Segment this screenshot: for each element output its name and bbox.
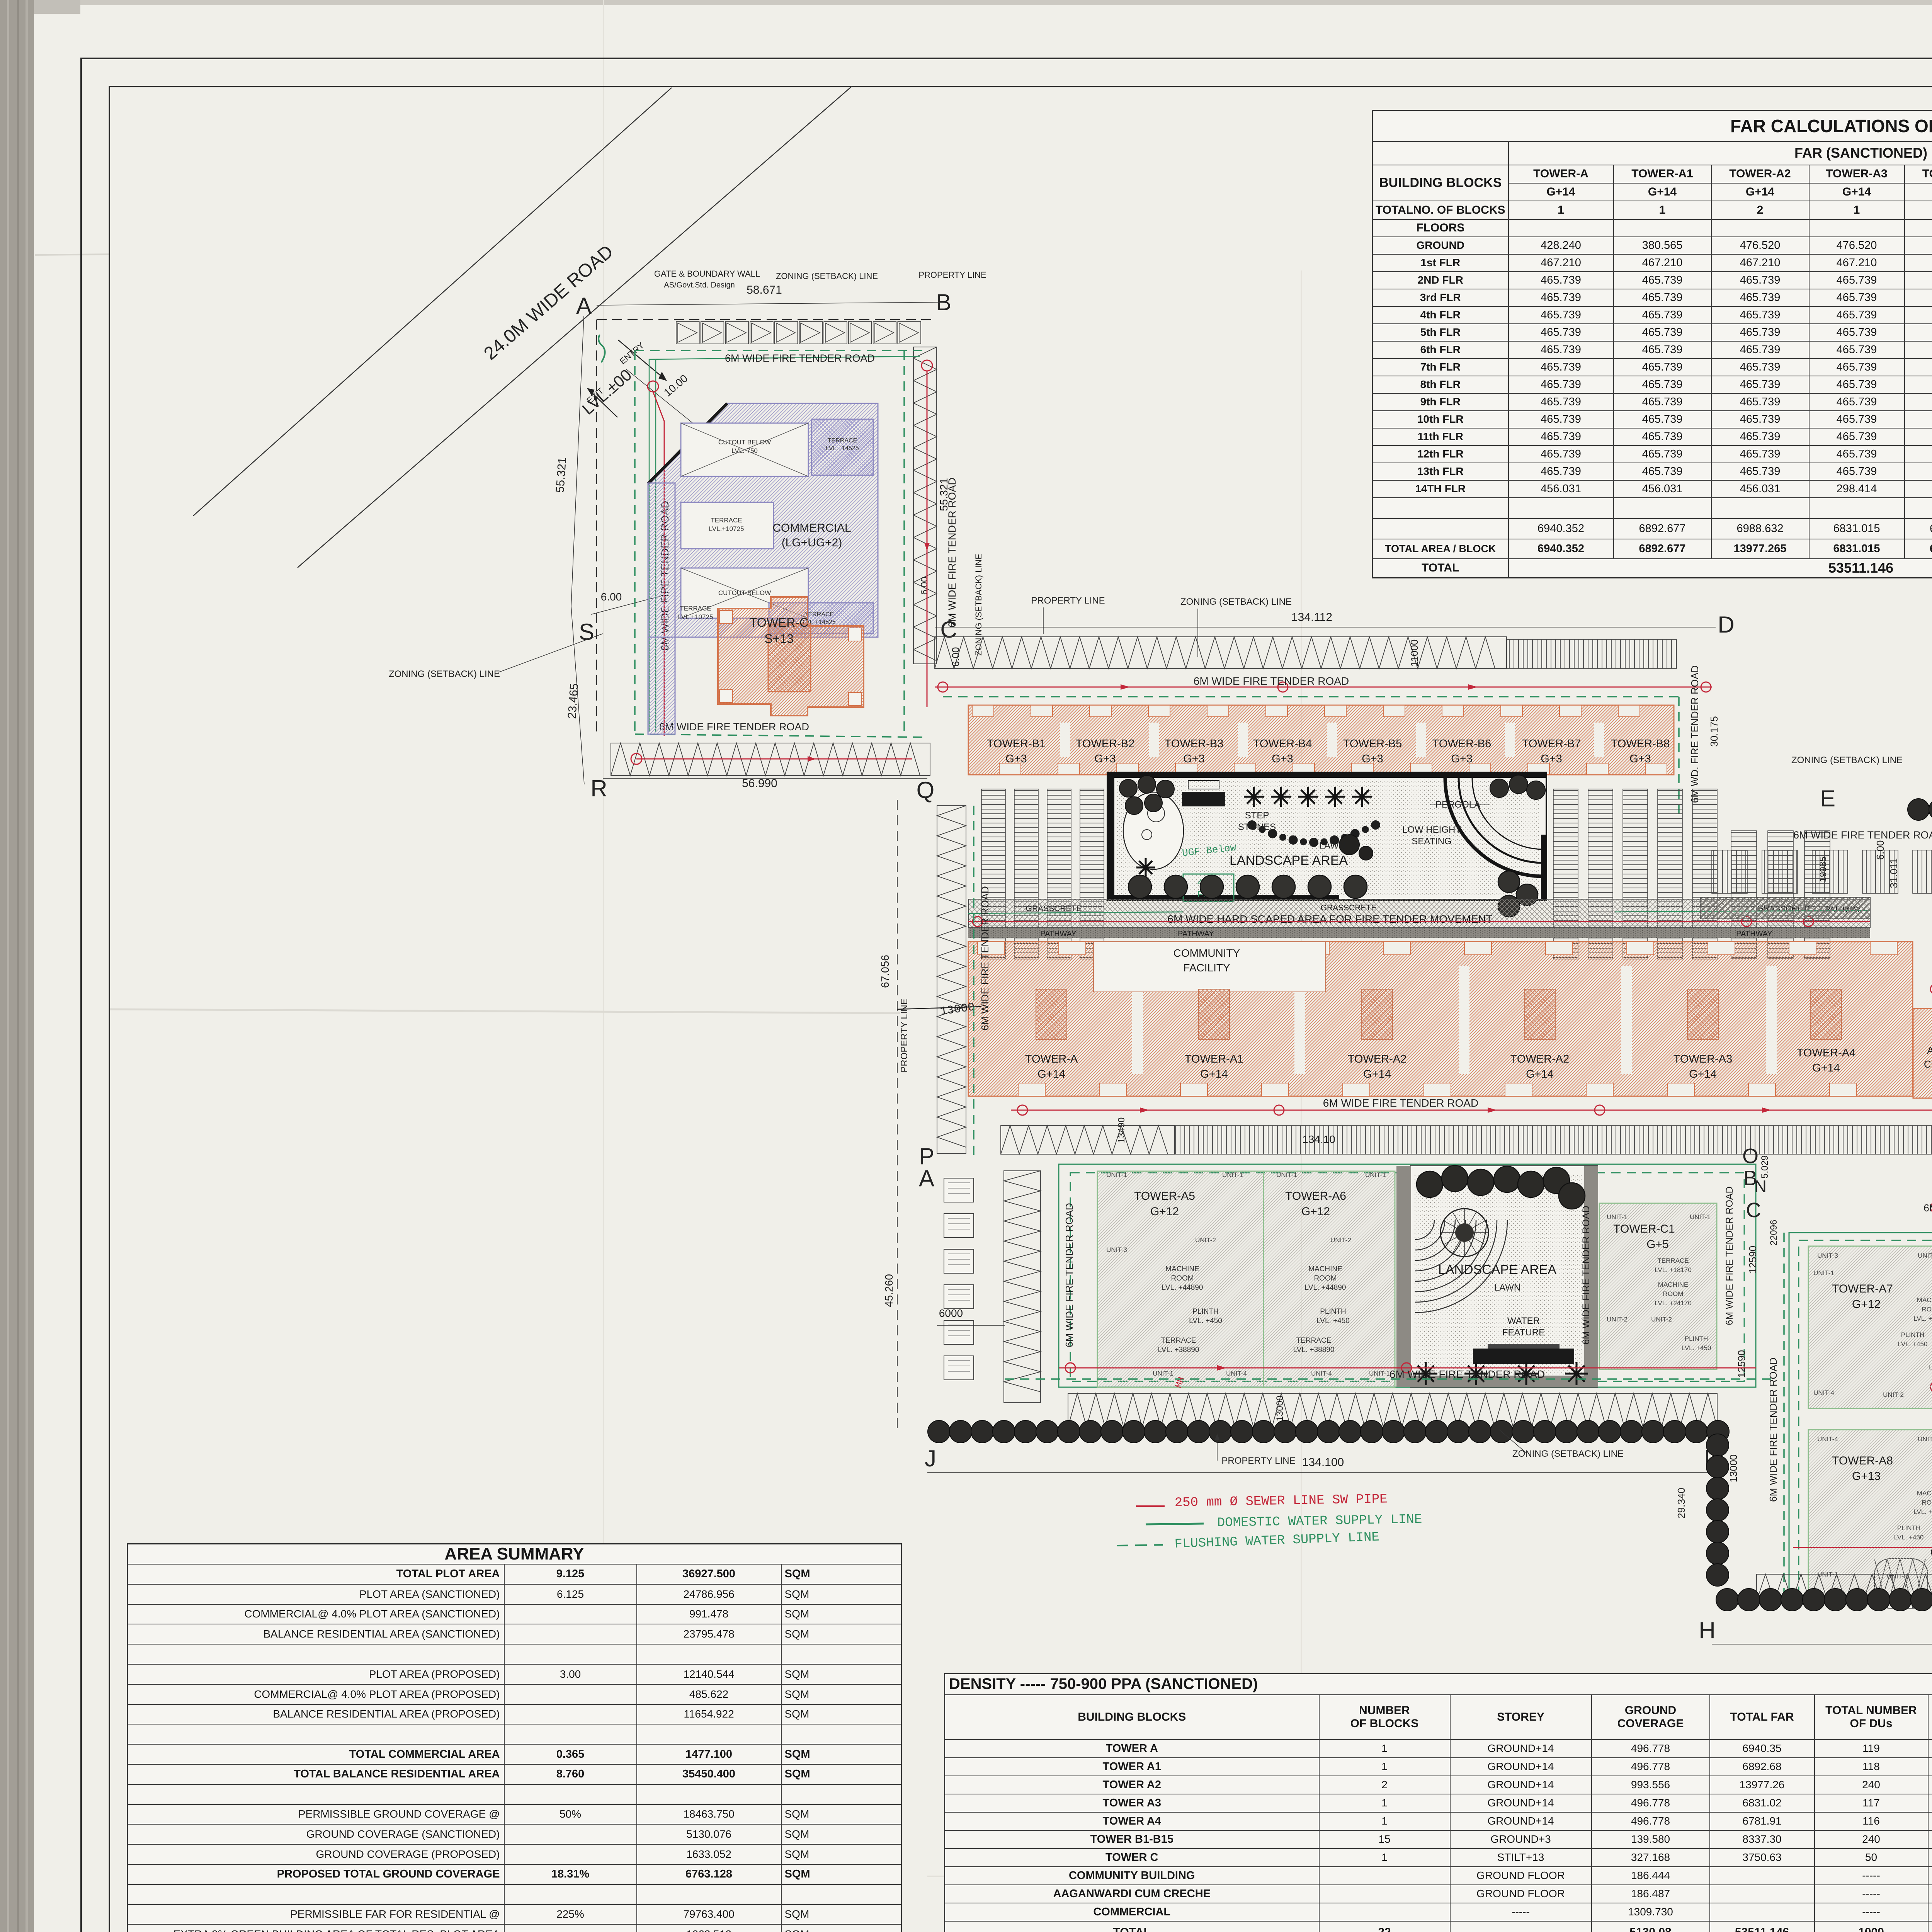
svg-text:A: A (919, 1165, 934, 1191)
svg-text:TOWER-A2: TOWER-A2 (1348, 1053, 1407, 1065)
svg-text:UNIT-4: UNIT-4 (1813, 1389, 1834, 1396)
svg-text:UNIT-1: UNIT-1 (1153, 1370, 1173, 1377)
svg-text:UNIT-4: UNIT-4 (1817, 1435, 1838, 1443)
svg-text:LVL. +450: LVL. +450 (1682, 1344, 1711, 1352)
svg-text:TOWER-A1: TOWER-A1 (1185, 1053, 1244, 1065)
svg-text:PROPERTY LINE: PROPERTY LINE (1031, 595, 1105, 606)
svg-text:S+13: S+13 (764, 632, 794, 646)
svg-text:58.671: 58.671 (747, 284, 782, 296)
svg-text:LVL. +38890: LVL. +38890 (1929, 1364, 1932, 1371)
svg-text:TOWER-C: TOWER-C (750, 616, 808, 629)
svg-text:WATER: WATER (1507, 1316, 1540, 1326)
svg-text:6M WD. FIRE TENDER ROAD: 6M WD. FIRE TENDER ROAD (1689, 665, 1701, 803)
svg-text:UNIT-3: UNIT-3 (1106, 1246, 1127, 1253)
svg-text:6M WIDE FIRE TENDER ROAD: 6M WIDE FIRE TENDER ROAD (725, 352, 875, 364)
svg-text:TOWER-A5: TOWER-A5 (1134, 1190, 1195, 1202)
svg-text:TOWER-A4: TOWER-A4 (1797, 1047, 1856, 1059)
svg-text:LAWN: LAWN (1319, 840, 1345, 851)
svg-text:TERRACE: TERRACE (1296, 1337, 1332, 1345)
svg-text:6M WIDE FIRE TENDER ROAD: 6M WIDE FIRE TENDER ROAD (1724, 1186, 1735, 1325)
svg-text:CUM CRECHE: CUM CRECHE (1924, 1058, 1932, 1070)
svg-text:6M WIDE FIRE TENDER ROAD: 6M WIDE FIRE TENDER ROAD (979, 886, 991, 1031)
svg-text:UNIT-1: UNIT-1 (1690, 1213, 1711, 1221)
svg-text:TOWER-B7: TOWER-B7 (1522, 738, 1581, 750)
svg-text:G+3: G+3 (1272, 753, 1293, 765)
svg-text:PATHWAY: PATHWAY (1178, 930, 1214, 938)
svg-text:PATHWAY: PATHWAY (1736, 930, 1772, 938)
svg-text:LOW HEIGHT: LOW HEIGHT (1402, 825, 1461, 835)
svg-text:TERRACE: TERRACE (828, 437, 857, 444)
svg-text:6.00: 6.00 (919, 577, 930, 595)
svg-text:LVL. +38890: LVL. +38890 (1293, 1346, 1335, 1354)
svg-text:TERRACE: TERRACE (711, 517, 742, 524)
svg-text:PLINTH: PLINTH (1192, 1308, 1219, 1316)
svg-text:ZONING (SETBACK) LINE: ZONING (SETBACK) LINE (776, 271, 878, 281)
svg-text:LVL. +450: LVL. +450 (1189, 1317, 1222, 1325)
svg-text:12590: 12590 (1736, 1350, 1747, 1378)
svg-text:STONES: STONES (1238, 822, 1276, 832)
svg-text:ZONING (SETBACK) LINE: ZONING (SETBACK) LINE (1791, 755, 1903, 765)
svg-text:ZONING (SETBACK) LINE: ZONING (SETBACK) LINE (1512, 1449, 1624, 1459)
svg-text:UNIT-1: UNIT-1 (1106, 1171, 1127, 1179)
svg-text:G+14: G+14 (1689, 1068, 1717, 1080)
svg-text:ROOM: ROOM (1663, 1290, 1684, 1298)
svg-text:24.0M WIDE ROAD: 24.0M WIDE ROAD (480, 241, 617, 364)
svg-text:LVL.+14525: LVL.+14525 (826, 445, 859, 452)
svg-text:UNIT-2: UNIT-2 (1330, 1236, 1351, 1244)
svg-text:FEATURE: FEATURE (1502, 1327, 1545, 1338)
svg-text:J: J (925, 1446, 936, 1471)
svg-text:30.175: 30.175 (1708, 716, 1720, 747)
svg-text:UNIT-1: UNIT-1 (1222, 1171, 1243, 1179)
svg-text:ANGANWADI: ANGANWADI (1927, 1044, 1932, 1056)
svg-text:6M WIDE FIRE TENDER ROAD: 6M WIDE FIRE TENDER ROAD (1930, 1546, 1932, 1558)
svg-text:22096: 22096 (1769, 1220, 1779, 1246)
svg-text:E: E (1820, 786, 1835, 811)
svg-text:ENTRY: ENTRY (618, 340, 646, 366)
svg-text:6M WIDE ROAD: 6M WIDE ROAD (1923, 1202, 1932, 1214)
svg-text:6M WIDE FIRE TENDER ROAD: 6M WIDE FIRE TENDER ROAD (1194, 675, 1349, 687)
svg-text:C: C (1746, 1199, 1761, 1222)
svg-text:LVL.±00: LVL.±00 (578, 366, 635, 418)
svg-text:PLINTH: PLINTH (1901, 1331, 1924, 1338)
svg-text:PROPERTY LINE: PROPERTY LINE (899, 998, 910, 1072)
svg-text:LVL. +450: LVL. +450 (1898, 1340, 1928, 1348)
svg-text:LVL. +450: LVL. +450 (1316, 1317, 1350, 1325)
svg-text:UNIT-2: UNIT-2 (1607, 1316, 1628, 1323)
svg-text:LVL.+10725: LVL.+10725 (678, 613, 713, 621)
svg-text:6M WIDE FIRE TENDER ROAD: 6M WIDE FIRE TENDER ROAD (659, 721, 809, 733)
svg-text:LVL. +44890: LVL. +44890 (1913, 1315, 1932, 1322)
svg-text:PLINTH: PLINTH (1897, 1524, 1920, 1532)
svg-text:UNIT-1: UNIT-1 (1813, 1269, 1834, 1277)
svg-text:6M WIDE FIRE TENDER ROAD: 6M WIDE FIRE TENDER ROAD (1793, 829, 1932, 841)
svg-text:PLINTH: PLINTH (1320, 1308, 1346, 1316)
svg-text:6000: 6000 (939, 1307, 963, 1319)
svg-text:134.10: 134.10 (1302, 1133, 1335, 1145)
svg-text:TERRACE: TERRACE (1161, 1337, 1196, 1345)
svg-text:DOMESTIC WATER SUPPLY LINE: DOMESTIC WATER SUPPLY LINE (1217, 1512, 1422, 1531)
svg-text:TOWER-B4: TOWER-B4 (1253, 738, 1312, 750)
svg-text:TERRACE: TERRACE (680, 605, 711, 612)
svg-text:11000: 11000 (1408, 639, 1420, 667)
svg-text:LVL. +44890: LVL. +44890 (1305, 1284, 1346, 1292)
svg-text:G+13: G+13 (1852, 1470, 1881, 1483)
svg-text:LVL. +47850: LVL. +47850 (1913, 1508, 1932, 1515)
svg-text:TOWER-A6: TOWER-A6 (1285, 1190, 1346, 1202)
svg-text:GRASSCRETE: GRASSCRETE (1321, 903, 1377, 912)
svg-text:G+12: G+12 (1852, 1298, 1881, 1311)
svg-text:6M WIDE FIRE TENDER ROAD: 6M WIDE FIRE TENDER ROAD (1323, 1097, 1478, 1109)
svg-text:CUTOUT BELOW: CUTOUT BELOW (718, 439, 771, 446)
svg-text:67.056: 67.056 (879, 955, 891, 988)
svg-text:G+14: G+14 (1363, 1068, 1391, 1080)
svg-text:TOWER-C1: TOWER-C1 (1613, 1223, 1675, 1235)
svg-text:6M WIDE FIRE TENDER ROAD: 6M WIDE FIRE TENDER ROAD (1767, 1357, 1779, 1502)
svg-text:TERRACE: TERRACE (804, 611, 834, 618)
svg-text:S: S (579, 619, 594, 645)
svg-text:23.465: 23.465 (566, 683, 581, 719)
svg-text:TOWER-B3: TOWER-B3 (1165, 738, 1224, 750)
svg-text:G+3: G+3 (1094, 753, 1116, 765)
svg-text:MACHINE: MACHINE (1165, 1265, 1199, 1273)
svg-text:UNIT-2: UNIT-2 (1883, 1391, 1904, 1398)
svg-text:MACHINE: MACHINE (1917, 1296, 1932, 1304)
svg-text:ZONING (SETBACK) LINE: ZONING (SETBACK) LINE (1180, 597, 1292, 607)
svg-text:CUTOUT BELOW: CUTOUT BELOW (718, 589, 771, 597)
svg-text:D: D (1718, 612, 1734, 638)
svg-text:134.112: 134.112 (1291, 611, 1332, 624)
svg-text:250 mm Ø SEWER LINE SW PIPE: 250 mm Ø SEWER LINE SW PIPE (1175, 1492, 1388, 1510)
svg-text:ROOM: ROOM (1314, 1274, 1337, 1282)
svg-text:G+14: G+14 (1812, 1062, 1840, 1074)
svg-text:(LG+UG+2): (LG+UG+2) (782, 536, 842, 549)
svg-text:TOWER-B5: TOWER-B5 (1343, 738, 1402, 750)
svg-text:6M WIDE FIRE TENDER ROAD: 6M WIDE FIRE TENDER ROAD (1063, 1203, 1075, 1347)
svg-text:LVL. +24170: LVL. +24170 (1655, 1299, 1692, 1307)
svg-text:10.00: 10.00 (662, 372, 690, 399)
svg-text:13000: 13000 (1728, 1454, 1739, 1482)
svg-text:LVL. +38890: LVL. +38890 (1158, 1346, 1199, 1354)
svg-text:LVL.-750: LVL.-750 (731, 447, 758, 454)
svg-text:LANDSCAPE AREA: LANDSCAPE AREA (1230, 853, 1348, 868)
svg-text:5.029: 5.029 (1760, 1155, 1770, 1179)
svg-text:G+12: G+12 (1150, 1205, 1179, 1218)
svg-text:MACHINE: MACHINE (1308, 1265, 1342, 1273)
svg-text:G+12: G+12 (1301, 1205, 1330, 1218)
svg-text:55.321: 55.321 (938, 478, 950, 511)
svg-text:UNIT-1: UNIT-1 (1365, 1171, 1386, 1179)
svg-text:FACILITY: FACILITY (1183, 962, 1230, 974)
svg-text:R: R (590, 776, 607, 801)
svg-text:N: N (1754, 1177, 1767, 1196)
svg-text:TOWER-A3: TOWER-A3 (1673, 1053, 1733, 1065)
svg-text:ROOM: ROOM (1922, 1306, 1932, 1313)
svg-text:TOWER-A2: TOWER-A2 (1510, 1053, 1570, 1065)
svg-text:TOWER-B6: TOWER-B6 (1432, 738, 1492, 750)
svg-text:COMMERCIAL: COMMERCIAL (772, 522, 851, 534)
svg-text:GRASSCRETE: GRASSCRETE (1026, 904, 1082, 913)
svg-text:A: A (576, 293, 592, 319)
svg-text:TOWER-A: TOWER-A (1025, 1053, 1078, 1065)
svg-text:TOWER-B8: TOWER-B8 (1611, 738, 1670, 750)
svg-text:31.011: 31.011 (1888, 858, 1900, 888)
svg-text:H: H (1699, 1617, 1715, 1643)
svg-text:LVL. +18170: LVL. +18170 (1655, 1266, 1692, 1274)
svg-text:ROOM: ROOM (1171, 1274, 1194, 1282)
svg-text:6M WIDE HARD SCAPED AREA FOR F: 6M WIDE HARD SCAPED AREA FOR FIRE TENDER… (1167, 913, 1492, 925)
svg-text:GATE & BOUNDARY WALL: GATE & BOUNDARY WALL (654, 269, 760, 279)
svg-text:FLUSHING WATER SUPPLY LINE: FLUSHING WATER SUPPLY LINE (1174, 1530, 1380, 1552)
svg-text:6.00: 6.00 (601, 591, 622, 603)
svg-text:UNIT-4: UNIT-4 (1226, 1370, 1247, 1377)
svg-text:LVL.+10725: LVL.+10725 (709, 525, 744, 532)
svg-text:29.340: 29.340 (1675, 1488, 1687, 1519)
svg-text:6.00: 6.00 (950, 647, 961, 667)
svg-text:UNIT-3: UNIT-3 (1817, 1252, 1838, 1259)
svg-text:6M WIDE FIRE TENDER ROAD: 6M WIDE FIRE TENDER ROAD (1581, 1206, 1592, 1344)
svg-text:STEP: STEP (1245, 810, 1269, 821)
svg-text:SEATING: SEATING (1412, 836, 1452, 847)
svg-text:LVL. +44890: LVL. +44890 (1162, 1284, 1203, 1292)
svg-text:G+14: G+14 (1200, 1068, 1228, 1080)
svg-text:AS/Govt.Std. Design: AS/Govt.Std. Design (664, 281, 735, 289)
svg-text:LVL. +450: LVL. +450 (1894, 1534, 1924, 1541)
svg-text:UNIT-1: UNIT-1 (1607, 1213, 1628, 1221)
svg-text:UNIT-3: UNIT-3 (1918, 1252, 1932, 1259)
svg-text:G+14: G+14 (1526, 1068, 1554, 1080)
svg-text:UNIT-4: UNIT-4 (1311, 1370, 1332, 1377)
svg-text:COMMUNITY: COMMUNITY (1173, 947, 1240, 959)
svg-text:O: O (1742, 1145, 1759, 1168)
svg-text:TOWER-B2: TOWER-B2 (1076, 738, 1135, 750)
svg-text:55.321: 55.321 (554, 457, 569, 493)
svg-text:134.100: 134.100 (1302, 1456, 1344, 1469)
svg-text:PATHWAY: PATHWAY (1040, 930, 1077, 938)
svg-text:PLINTH: PLINTH (1685, 1335, 1708, 1342)
svg-text:56.990: 56.990 (742, 777, 777, 790)
svg-text:UNIT-1: UNIT-1 (1369, 1370, 1390, 1377)
svg-text:LAWN: LAWN (1494, 1282, 1520, 1293)
svg-text:TERRACE: TERRACE (1657, 1257, 1689, 1264)
svg-text:LANDSCAPE AREA: LANDSCAPE AREA (1438, 1262, 1556, 1277)
svg-text:13000: 13000 (1275, 1396, 1285, 1422)
svg-text:UNIT-2: UNIT-2 (1195, 1236, 1216, 1244)
svg-text:PROPERTY LINE: PROPERTY LINE (918, 270, 986, 280)
svg-text:Q: Q (917, 777, 935, 803)
svg-text:ZONING (SETBACK) LINE: ZONING (SETBACK) LINE (389, 669, 500, 679)
svg-text:45.260: 45.260 (883, 1274, 895, 1307)
svg-text:MACHINE: MACHINE (1917, 1490, 1932, 1497)
svg-text:UNIT-1: UNIT-1 (1276, 1171, 1297, 1179)
svg-text:6.00: 6.00 (1874, 840, 1886, 860)
svg-text:TOWER-A8: TOWER-A8 (1832, 1454, 1893, 1467)
svg-text:MACHINE: MACHINE (1658, 1281, 1688, 1288)
svg-text:G+14: G+14 (1037, 1068, 1065, 1080)
svg-text:UNIT-1: UNIT-1 (1918, 1435, 1932, 1443)
svg-text:G+5: G+5 (1646, 1238, 1669, 1251)
svg-text:13490: 13490 (1116, 1117, 1127, 1143)
svg-text:TOWER-A7: TOWER-A7 (1832, 1282, 1893, 1295)
svg-text:19985: 19985 (1818, 857, 1828, 883)
svg-text:ROOM: ROOM (1922, 1499, 1932, 1506)
svg-text:TOWER-B1: TOWER-B1 (987, 738, 1046, 750)
svg-text:UNIT-2: UNIT-2 (1651, 1316, 1672, 1323)
svg-text:PROPERTY LINE: PROPERTY LINE (1221, 1456, 1295, 1466)
svg-text:12590: 12590 (1747, 1246, 1759, 1274)
